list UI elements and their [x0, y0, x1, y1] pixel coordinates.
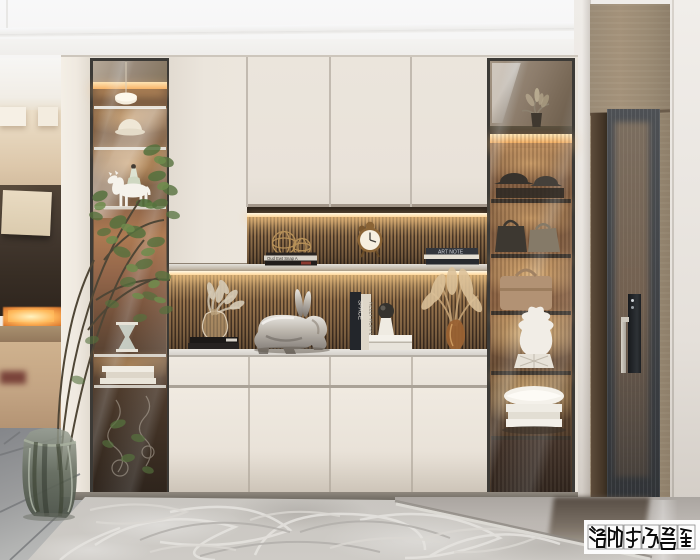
svg-text:Oud Ewt Snap A: Oud Ewt Snap A: [267, 256, 298, 261]
svg-text:ART NOTE: ART NOTE: [438, 250, 464, 256]
svg-text:SPACE: SPACE: [357, 300, 363, 320]
svg-text:KELLY HOPPEN: KELLY HOPPEN: [368, 302, 374, 340]
